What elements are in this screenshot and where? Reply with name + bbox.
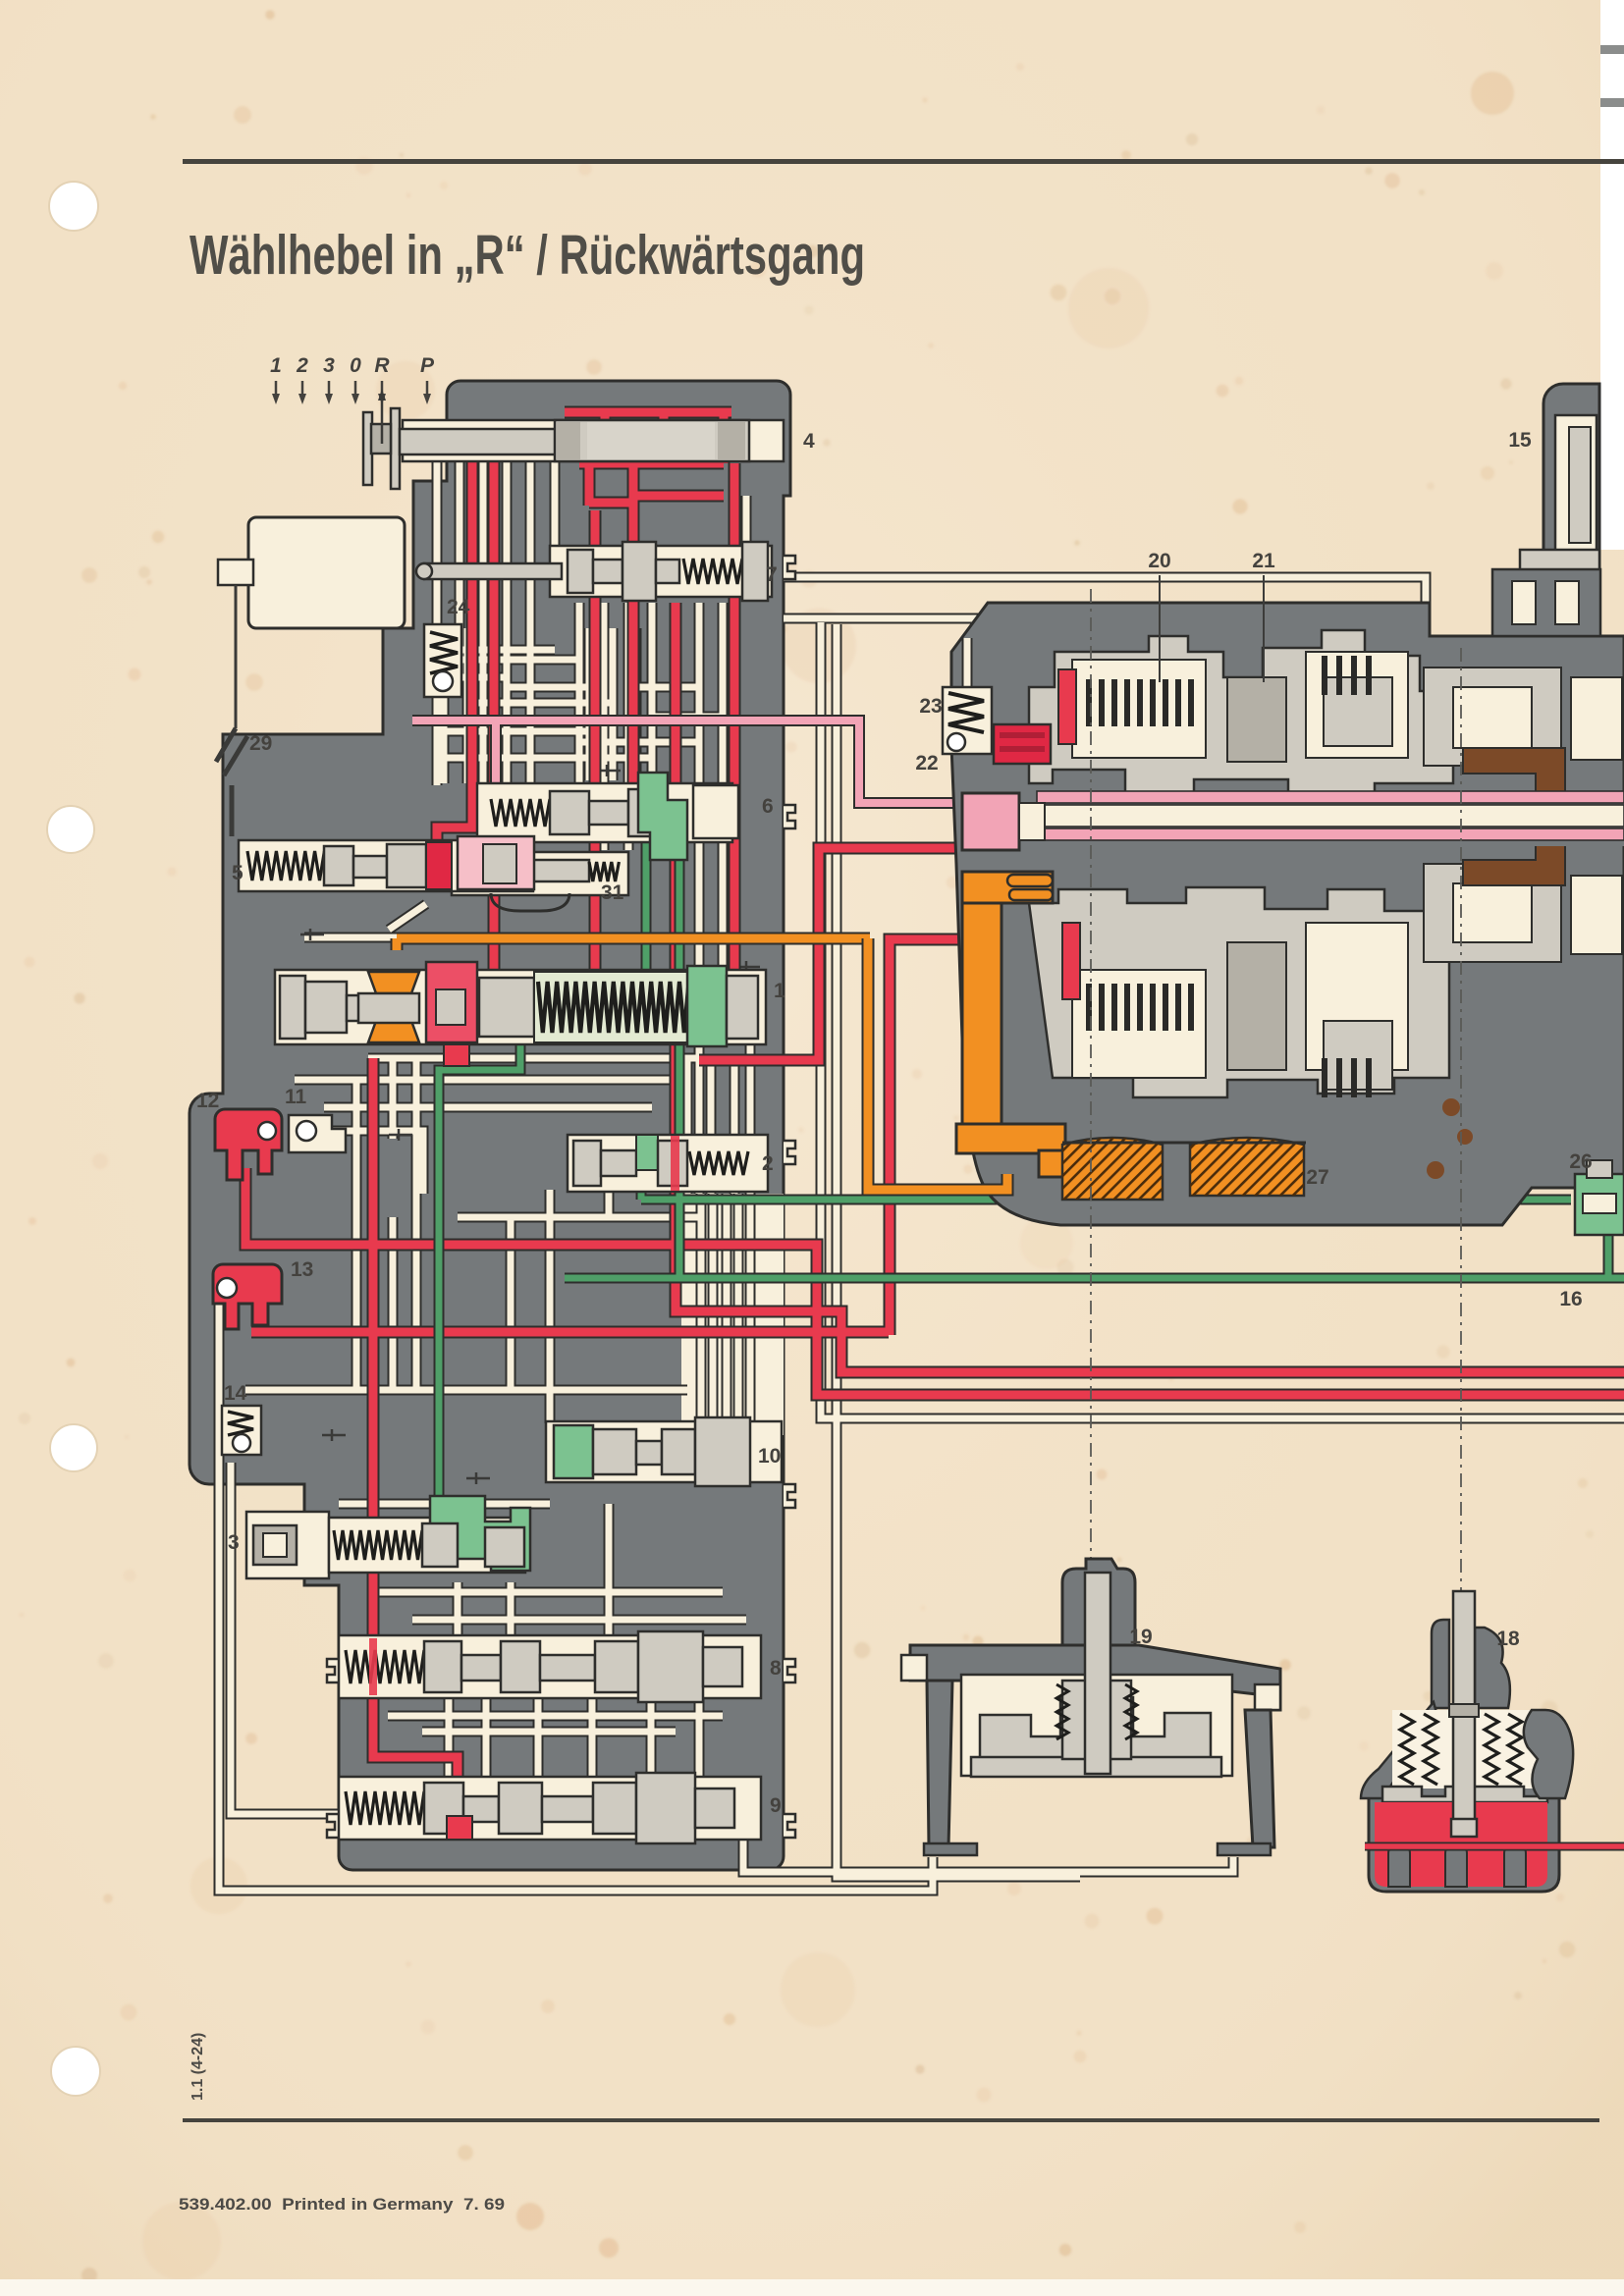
svg-text:31: 31 (601, 881, 624, 904)
svg-text:13: 13 (291, 1258, 313, 1281)
svg-text:19: 19 (1129, 1626, 1152, 1648)
svg-text:2: 2 (296, 354, 308, 377)
svg-text:P: P (420, 354, 435, 377)
svg-text:Wählhebel in „R“ / Rückwärtsga: Wählhebel in „R“ / Rückwärtsgang (189, 224, 865, 287)
svg-text:3: 3 (323, 354, 335, 377)
svg-text:27: 27 (1306, 1166, 1328, 1189)
svg-text:10: 10 (758, 1445, 781, 1468)
svg-text:16: 16 (1559, 1288, 1582, 1310)
svg-text:24: 24 (447, 596, 470, 618)
svg-text:3: 3 (228, 1531, 240, 1554)
svg-text:15: 15 (1508, 429, 1532, 452)
svg-text:22: 22 (915, 752, 938, 774)
svg-text:23: 23 (919, 695, 942, 718)
svg-text:12: 12 (196, 1090, 219, 1112)
svg-text:11: 11 (285, 1086, 307, 1108)
svg-text:539.402.00 Printed in Germany: 539.402.00 Printed in Germany 7. 69 (179, 2195, 505, 2214)
svg-text:0: 0 (350, 354, 361, 377)
svg-text:29: 29 (249, 732, 272, 755)
svg-text:18: 18 (1496, 1628, 1520, 1650)
svg-text:1.1 (4-24): 1.1 (4-24) (189, 2033, 206, 2101)
svg-text:6: 6 (762, 795, 774, 818)
svg-text:9: 9 (770, 1794, 782, 1817)
svg-text:21: 21 (1252, 550, 1275, 572)
svg-text:7: 7 (766, 563, 778, 586)
svg-text:8: 8 (770, 1657, 782, 1680)
svg-text:2: 2 (762, 1152, 774, 1175)
svg-text:5: 5 (232, 862, 244, 884)
svg-text:1: 1 (270, 354, 282, 377)
svg-text:1: 1 (774, 980, 785, 1002)
svg-text:4: 4 (803, 430, 815, 453)
svg-text:R: R (374, 354, 390, 377)
svg-text:26: 26 (1569, 1150, 1592, 1173)
svg-text:14: 14 (224, 1382, 247, 1405)
svg-text:20: 20 (1148, 550, 1170, 572)
